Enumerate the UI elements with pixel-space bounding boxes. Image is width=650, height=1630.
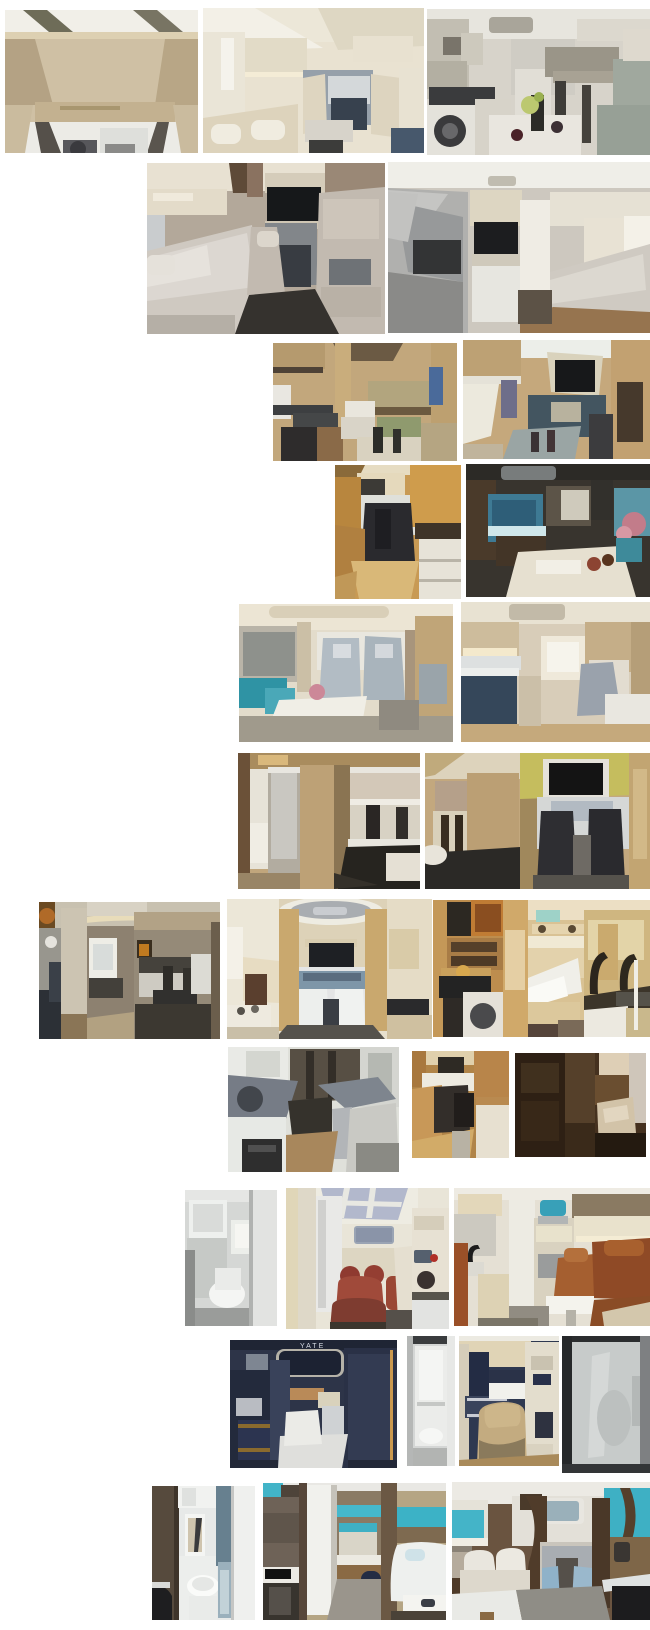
svg-text:YATE: YATE (300, 1343, 325, 1350)
